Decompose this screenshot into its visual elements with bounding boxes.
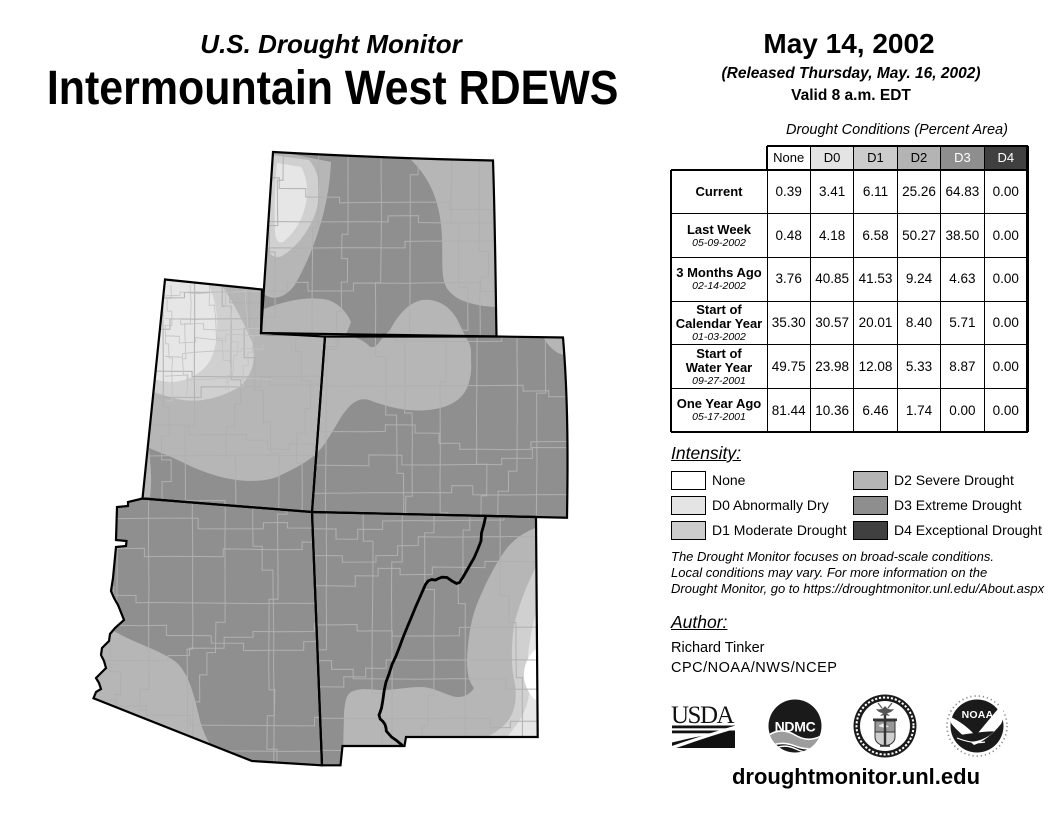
svg-text:NDMC: NDMC bbox=[775, 719, 816, 735]
svg-text:NOAA: NOAA bbox=[962, 709, 994, 721]
svg-text:USDA: USDA bbox=[671, 702, 735, 729]
